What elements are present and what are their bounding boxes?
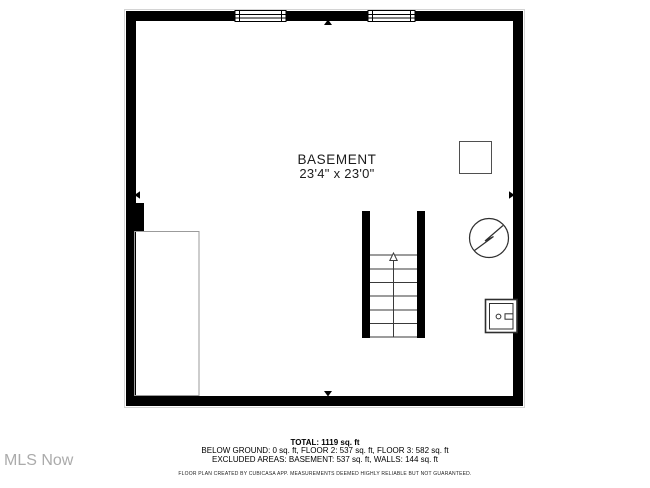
- window-icon: [235, 11, 286, 22]
- room-label: BASEMENT 23'4" x 23'0": [237, 152, 437, 181]
- stair-wall-right: [417, 211, 425, 338]
- excluded-area-text: EXCLUDED AREAS: BASEMENT: 537 sq. ft, WA…: [0, 456, 650, 465]
- floor-plan-page: BASEMENT 23'4" x 23'0" TOTAL: 1119 sq. f…: [0, 0, 650, 488]
- measure-arrow-bottom-icon: [324, 391, 332, 397]
- wall-shadow-outline: [125, 10, 525, 408]
- stair-wall-left: [362, 211, 370, 338]
- storage-area-outline: [135, 232, 200, 396]
- exterior-wall: [131, 16, 518, 401]
- room-dimensions: 23'4" x 23'0": [237, 167, 437, 181]
- room-name: BASEMENT: [237, 152, 437, 167]
- fixture-square-icon: [460, 142, 492, 174]
- area-summary: TOTAL: 1119 sq. ft BELOW GROUND: 0 sq. f…: [0, 438, 650, 477]
- mls-watermark: MLS Now: [4, 452, 73, 470]
- water-heater-icon: [470, 219, 509, 258]
- wall-pilaster: [134, 203, 144, 232]
- floor-plan-drawing: [0, 0, 650, 488]
- furnace-icon: [486, 300, 518, 333]
- disclaimer-text: FLOOR PLAN CREATED BY CUBICASA APP. MEAS…: [0, 471, 650, 477]
- up-arrow-icon: [390, 253, 397, 261]
- staircase: [362, 211, 425, 338]
- window-icon: [368, 11, 415, 22]
